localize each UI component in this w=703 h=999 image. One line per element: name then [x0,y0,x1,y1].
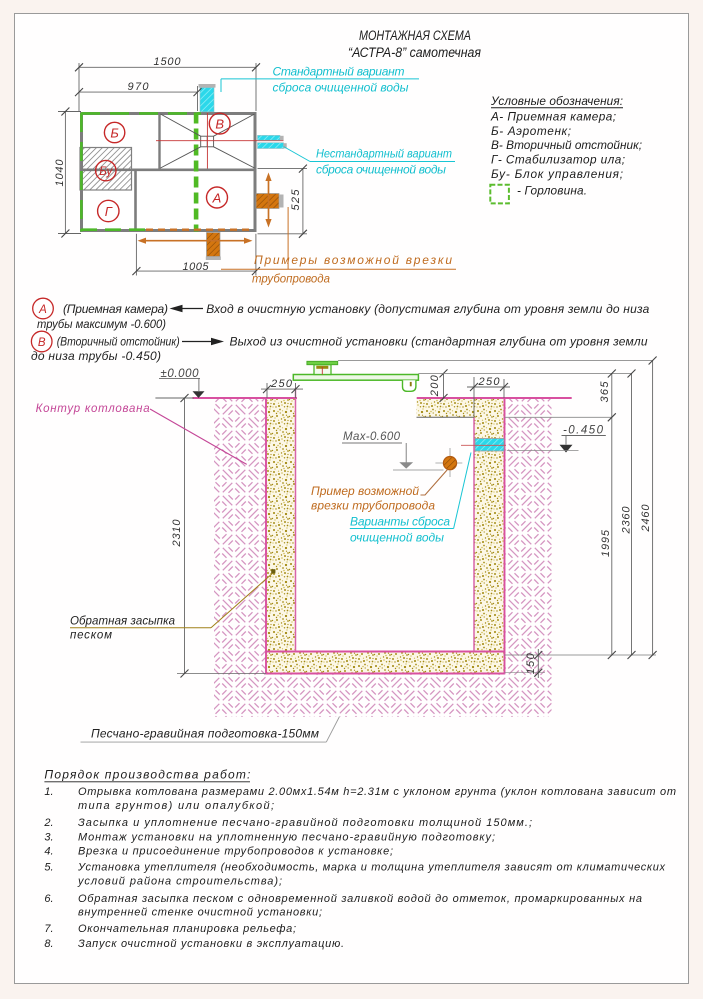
svg-text:внутренней стенке очистной уст: внутренней стенке очистной установки; [78,907,322,919]
svg-text:Г: Г [105,204,113,219]
svg-text:Отрывка котлована размерами 2.: Отрывка котлована размерами 2.00мх1.54м … [78,786,676,798]
svg-text:8.: 8. [44,938,53,950]
svg-text:Стандартный вариант: Стандартный вариант [273,65,405,79]
svg-text:В- Вторичный отстойник;: В- Вторичный отстойник; [491,138,642,152]
svg-text:- Горловина.: - Горловина. [517,184,587,198]
svg-text:типа грунтов) или опалубкой;: типа грунтов) или опалубкой; [78,800,274,812]
svg-text:1040: 1040 [54,159,66,187]
svg-text:1005: 1005 [183,261,210,273]
svg-text:Обратная засыпка песком с одно: Обратная засыпка песком с одновременной … [78,893,642,905]
svg-text:А: А [212,190,222,205]
svg-text:2460: 2460 [640,504,652,533]
svg-text:Бу- Блок управления;: Бу- Блок управления; [491,167,623,181]
svg-text:условий района строительства);: условий района строительства); [77,876,282,888]
svg-text:МОНТАЖНАЯ СХЕМА: МОНТАЖНАЯ СХЕМА [359,28,471,43]
svg-text:250: 250 [478,376,501,388]
svg-text:2.: 2. [43,817,53,829]
svg-text:Выход из очистной установки (с: Выход из очистной установки (стандартная… [230,335,648,349]
svg-text:1995: 1995 [600,529,612,557]
svg-text:врезки трубопровода: врезки трубопровода [311,498,435,512]
svg-text:В: В [215,116,224,131]
svg-text:Б- Аэротенк;: Б- Аэротенк; [491,124,571,138]
svg-text:до низа трубы -0.450): до низа трубы -0.450) [31,349,161,363]
svg-text:(Вторичный отстойник): (Вторичный отстойник) [57,335,180,349]
svg-text:525: 525 [290,189,302,211]
svg-text:2310: 2310 [171,519,183,548]
svg-text:Окончательная планировка релье: Окончательная планировка рельефа; [78,923,296,935]
svg-text:Условные обозначения:: Условные обозначения: [490,94,623,108]
svg-text:трубопровода: трубопровода [252,272,330,286]
svg-text:Мах-0.600: Мах-0.600 [343,431,401,443]
svg-text:Монтаж установки на уплотненну: Монтаж установки на уплотненную песчано-… [78,832,495,844]
svg-text:Б: Б [110,125,119,140]
svg-text:5.: 5. [44,862,53,874]
svg-text:Бу: Бу [99,166,113,178]
svg-text:200: 200 [429,374,441,397]
svg-text:365: 365 [599,381,611,403]
svg-text:970: 970 [128,81,150,93]
svg-text:Песчано-гравийная подготовка-1: Песчано-гравийная подготовка-150мм [91,727,319,741]
svg-text:(Приемная камера): (Приемная камера) [63,302,168,316]
svg-text:“АСТРА-8” самотечная: “АСТРА-8” самотечная [348,45,481,60]
svg-text:трубы максимум -0.600): трубы максимум -0.600) [37,317,166,331]
svg-text:Обратная засыпка: Обратная засыпка [70,616,175,628]
svg-text:Засыпка и уплотнение песчано-г: Засыпка и уплотнение песчано-гравийной п… [78,817,532,829]
svg-text:Запуск очистной установки в эк: Запуск очистной установки в эксплуатацию… [78,938,344,950]
svg-text:150: 150 [525,652,537,674]
svg-text:Примеры возможной врезки: Примеры возможной врезки [254,253,452,267]
svg-text:очищенной воды: очищенной воды [350,530,444,544]
svg-text:А: А [38,304,47,316]
svg-text:песком: песком [70,630,112,642]
svg-text:Установка утеплителя (необходи: Установка утеплителя (необходимость, мар… [77,862,665,874]
svg-text:Контур котлована: Контур котлована [36,403,150,415]
svg-text:сброса очищенной воды: сброса очищенной воды [273,81,409,95]
svg-text:6.: 6. [44,893,53,905]
svg-text:А- Приемная камера;: А- Приемная камера; [490,110,616,124]
svg-text:Г- Стабилизатор ила;: Г- Стабилизатор ила; [491,153,625,167]
svg-text:Пример возможной: Пример возможной [311,484,419,498]
svg-text:сброса очищенной воды: сброса очищенной воды [316,163,446,177]
svg-text:Порядок производства работ:: Порядок производства работ: [44,768,250,782]
svg-text:2360: 2360 [620,506,632,535]
svg-text:7.: 7. [44,923,53,935]
svg-text:Нестандартный вариант: Нестандартный вариант [316,147,452,161]
svg-text:Врезка и присоединение трубопр: Врезка и присоединение трубопроводов к у… [78,846,393,858]
svg-text:-0.450: -0.450 [563,425,604,437]
svg-text:1500: 1500 [154,56,182,68]
svg-text:1.: 1. [44,786,53,798]
svg-text:В: В [38,337,46,349]
svg-text:250: 250 [270,378,293,390]
svg-text:Вход в очистную установку (доп: Вход в очистную установку (допустимая гл… [206,302,649,316]
svg-text:Варианты сброса: Варианты сброса [350,514,450,528]
svg-text:4.: 4. [44,846,53,858]
svg-text:3.: 3. [44,832,53,844]
